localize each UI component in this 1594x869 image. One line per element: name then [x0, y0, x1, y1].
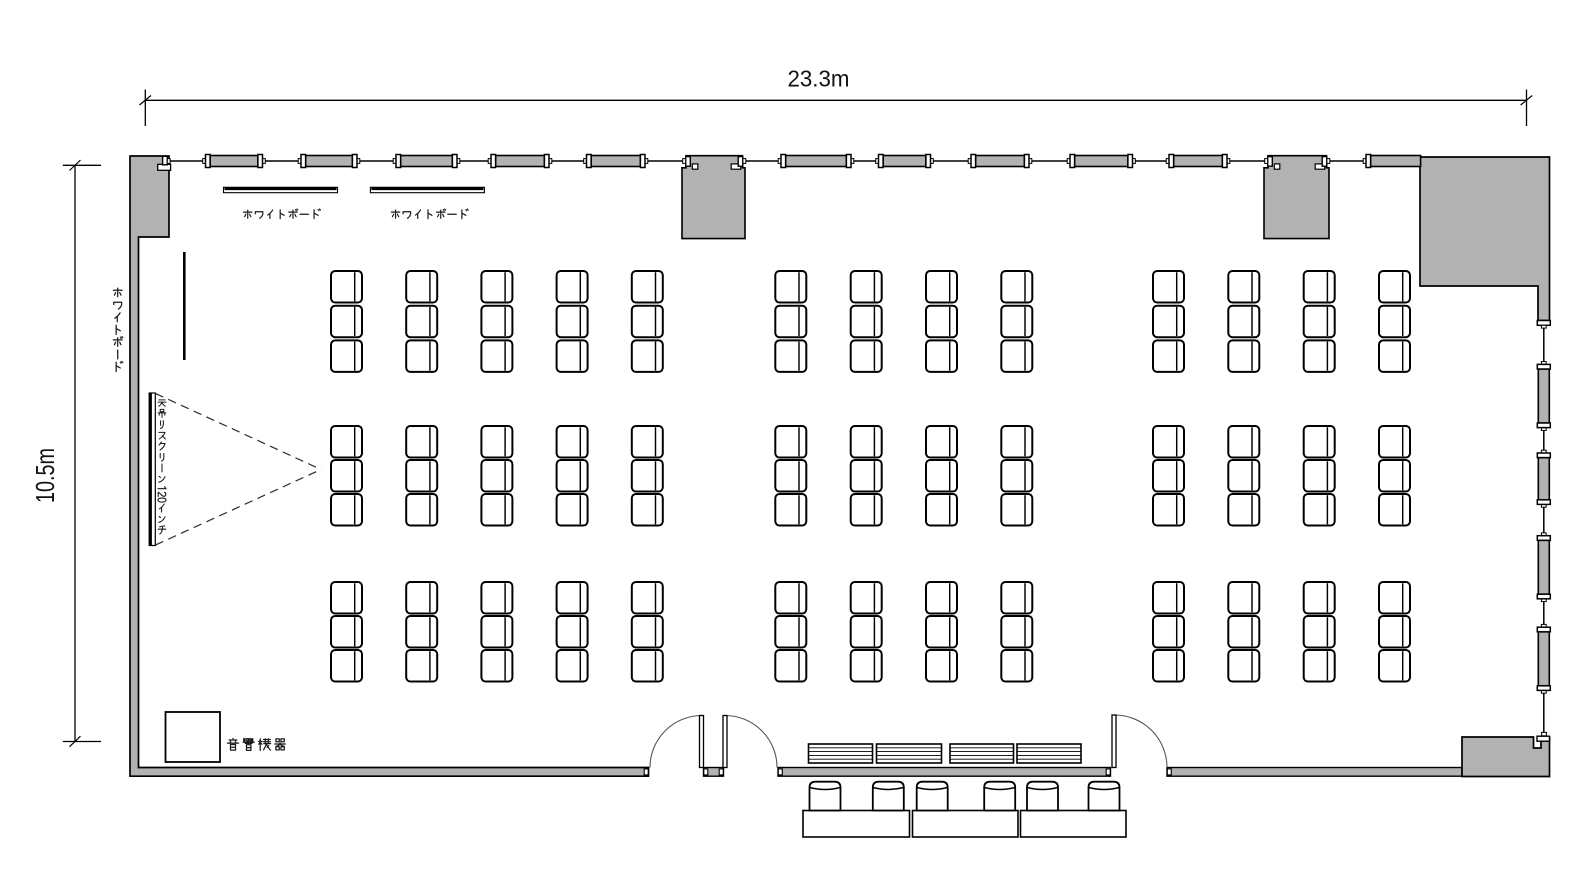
svg-text:23.3m: 23.3m	[788, 66, 850, 92]
svg-text:10.5m: 10.5m	[30, 448, 60, 503]
